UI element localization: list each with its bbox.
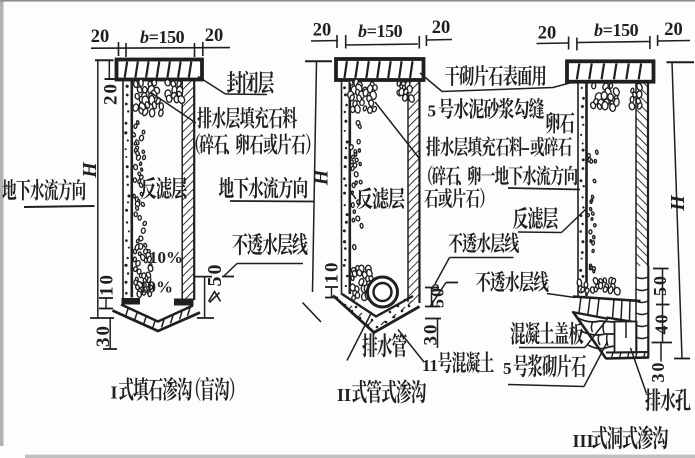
svg-text:20: 20 <box>313 21 332 41</box>
svg-text:5: 5 <box>428 102 437 121</box>
svg-text:10: 10 <box>322 261 343 284</box>
svg-text:H: H <box>79 161 101 179</box>
svg-text:b=150: b=150 <box>140 27 185 47</box>
svg-text:30: 30 <box>421 323 442 346</box>
svg-text:10%: 10% <box>139 278 173 297</box>
svg-text:20: 20 <box>538 24 557 44</box>
svg-text:5: 5 <box>503 359 512 378</box>
svg-text:10%: 10% <box>149 248 183 267</box>
svg-text:H: H <box>311 168 333 186</box>
svg-text:30: 30 <box>93 324 114 347</box>
svg-text:30: 30 <box>648 361 668 383</box>
svg-text:20: 20 <box>664 20 683 40</box>
svg-text:20: 20 <box>100 82 121 105</box>
svg-text:11: 11 <box>422 356 438 375</box>
svg-text:20: 20 <box>205 26 224 46</box>
svg-text:10: 10 <box>97 273 118 296</box>
svg-text:50: 50 <box>204 263 226 287</box>
svg-text:II: II <box>337 385 351 405</box>
svg-text:b=150: b=150 <box>358 21 403 41</box>
svg-text:50: 50 <box>650 274 670 296</box>
svg-text:40: 40 <box>652 313 672 335</box>
svg-text:b=150: b=150 <box>594 20 639 40</box>
svg-text:I: I <box>111 383 118 403</box>
svg-text:H: H <box>667 194 689 212</box>
svg-text:III: III <box>573 431 594 451</box>
svg-text:20: 20 <box>432 18 451 38</box>
svg-text:20: 20 <box>91 27 110 47</box>
